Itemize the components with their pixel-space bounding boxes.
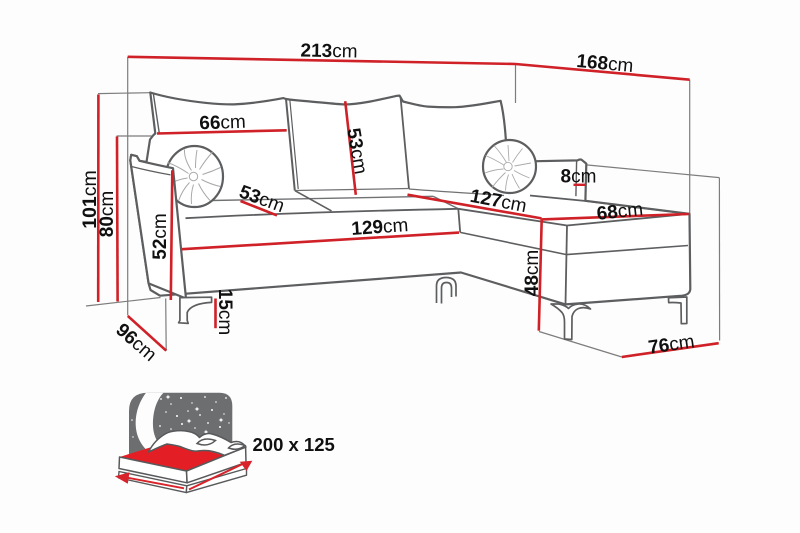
svg-text:8cm: 8cm (561, 167, 597, 188)
svg-text:52cm: 52cm (150, 213, 171, 259)
svg-text:66cm: 66cm (199, 112, 246, 135)
svg-text:48cm: 48cm (522, 250, 543, 296)
svg-text:80cm: 80cm (97, 191, 118, 237)
svg-text:213cm: 213cm (300, 40, 357, 62)
svg-text:15cm: 15cm (214, 289, 235, 335)
svg-text:200 x 125: 200 x 125 (253, 434, 335, 455)
svg-text:129cm: 129cm (351, 215, 409, 240)
